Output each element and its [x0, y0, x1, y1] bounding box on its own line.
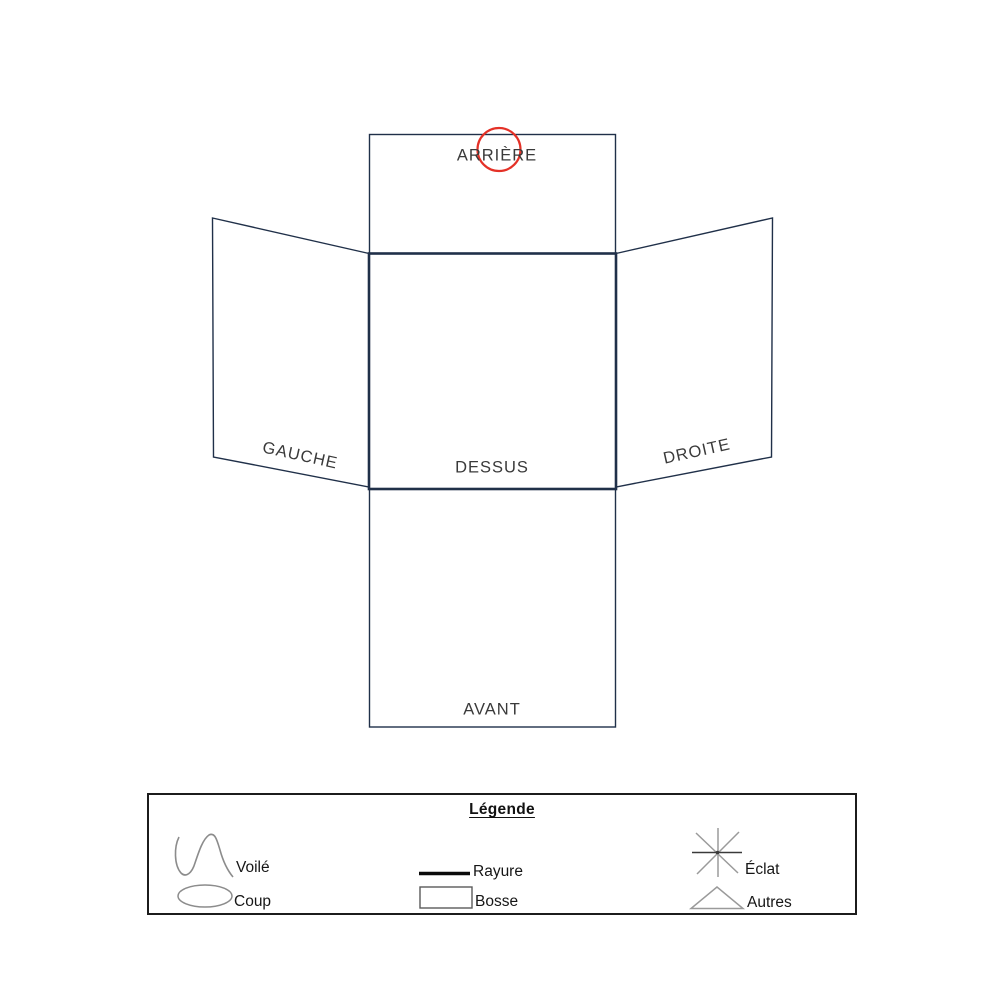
legend-label-bosse: Bosse	[475, 893, 518, 911]
panel-dessus[interactable]	[369, 254, 616, 490]
panel-avant[interactable]	[370, 489, 616, 727]
panel-label-arriere: ARRIÈRE	[457, 147, 537, 166]
legend-label-eclat: Éclat	[745, 861, 779, 879]
panel-label-dessus: DESSUS	[455, 459, 529, 478]
triangle-icon	[691, 887, 743, 909]
wave-icon	[175, 834, 233, 877]
rectangle-icon	[420, 887, 472, 908]
legend-box: Légende Voilé Coup Rayure Bosse	[147, 793, 857, 915]
damage-report-diagram: ARRIÈRE GAUCHE DESSUS DROITE AVANT Légen…	[0, 0, 1000, 1000]
legend-label-coup: Coup	[234, 893, 271, 911]
star-icon	[692, 828, 742, 877]
legend-label-rayure: Rayure	[473, 863, 523, 881]
legend-label-autres: Autres	[747, 894, 792, 912]
ellipse-icon	[178, 885, 232, 907]
panel-label-avant: AVANT	[463, 701, 521, 720]
legend-label-voile: Voilé	[236, 859, 270, 877]
